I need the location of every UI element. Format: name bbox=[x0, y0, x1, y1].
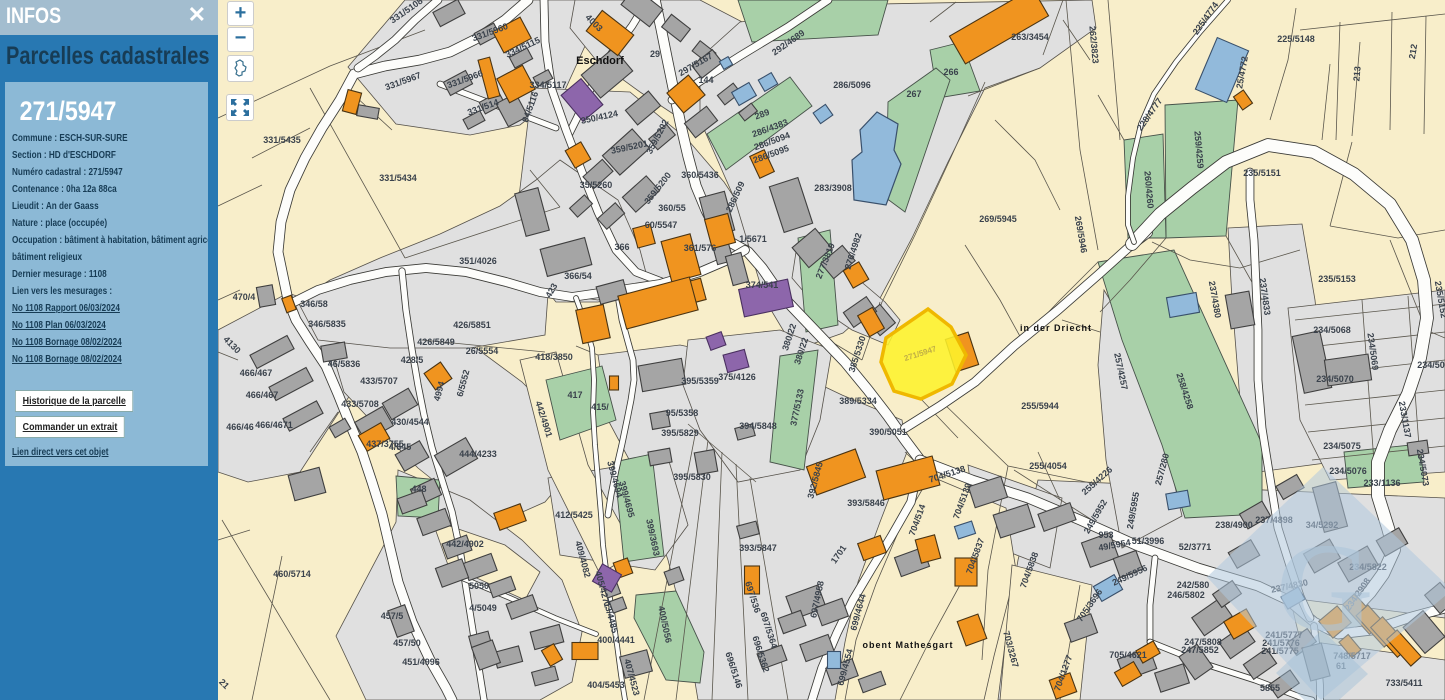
svg-text:366/54: 366/54 bbox=[564, 271, 592, 281]
svg-text:233/1136: 233/1136 bbox=[1363, 478, 1400, 488]
svg-text:255/4054: 255/4054 bbox=[1029, 461, 1067, 471]
svg-text:390/5051: 390/5051 bbox=[869, 427, 907, 437]
svg-text:26/5554: 26/5554 bbox=[466, 346, 499, 356]
svg-text:238/4900: 238/4900 bbox=[1215, 520, 1253, 530]
svg-text:360/5436: 360/5436 bbox=[681, 170, 719, 180]
svg-text:Eschdorf: Eschdorf bbox=[576, 55, 624, 67]
svg-text:255/5944: 255/5944 bbox=[1021, 401, 1059, 411]
svg-text:953: 953 bbox=[1098, 530, 1113, 540]
svg-text:234/5076: 234/5076 bbox=[1329, 466, 1367, 476]
svg-text:269/5945: 269/5945 bbox=[979, 214, 1017, 224]
svg-text:395/5359: 395/5359 bbox=[681, 376, 719, 386]
svg-text:374/541: 374/541 bbox=[746, 280, 779, 290]
svg-text:46/5836: 46/5836 bbox=[328, 359, 361, 369]
svg-text:4/645: 4/645 bbox=[389, 442, 412, 452]
svg-text:433/5707: 433/5707 bbox=[360, 376, 398, 386]
svg-text:351/4026: 351/4026 bbox=[459, 256, 497, 266]
svg-text:286/5096: 286/5096 bbox=[833, 80, 871, 90]
svg-text:375/4126: 375/4126 bbox=[718, 372, 756, 382]
svg-text:466/467: 466/467 bbox=[246, 390, 279, 400]
svg-text:283/3908: 283/3908 bbox=[814, 183, 852, 193]
svg-text:361/576: 361/576 bbox=[684, 243, 717, 253]
svg-text:360/55: 360/55 bbox=[658, 203, 686, 213]
svg-text:393/5847: 393/5847 bbox=[739, 543, 777, 553]
svg-text:60/5547: 60/5547 bbox=[645, 220, 678, 230]
svg-text:267: 267 bbox=[906, 89, 921, 99]
svg-text:389/5334: 389/5334 bbox=[839, 396, 877, 406]
svg-text:733/5411: 733/5411 bbox=[1385, 678, 1422, 688]
svg-text:235/5151: 235/5151 bbox=[1243, 168, 1281, 178]
svg-text:466/4671: 466/4671 bbox=[255, 420, 293, 430]
svg-text:395/5829: 395/5829 bbox=[661, 428, 699, 438]
svg-text:395/5830: 395/5830 bbox=[673, 472, 711, 482]
svg-text:460/5714: 460/5714 bbox=[273, 569, 311, 579]
svg-text:225/5148: 225/5148 bbox=[1277, 34, 1315, 44]
svg-text:obent Mathesgart: obent Mathesgart bbox=[862, 640, 953, 650]
svg-text:144: 144 bbox=[698, 75, 713, 85]
svg-text:263/3454: 263/3454 bbox=[1011, 32, 1049, 42]
svg-text:235/5153: 235/5153 bbox=[1318, 274, 1356, 284]
svg-text:366: 366 bbox=[614, 242, 629, 252]
svg-text:331/5435: 331/5435 bbox=[263, 135, 301, 145]
svg-text:234/5071: 234/5071 bbox=[1417, 360, 1445, 370]
svg-text:466/467: 466/467 bbox=[240, 368, 273, 378]
svg-text:705/4621: 705/4621 bbox=[1109, 650, 1147, 660]
svg-text:95/5358: 95/5358 bbox=[666, 408, 699, 418]
svg-text:451/4996: 451/4996 bbox=[402, 657, 440, 667]
svg-text:393/5846: 393/5846 bbox=[847, 498, 885, 508]
svg-text:234/5075: 234/5075 bbox=[1323, 441, 1361, 451]
svg-text:412/5425: 412/5425 bbox=[555, 510, 593, 520]
svg-text:426/5849: 426/5849 bbox=[417, 337, 455, 347]
svg-text:1/5671: 1/5671 bbox=[739, 234, 767, 244]
svg-text:4/5049: 4/5049 bbox=[469, 603, 497, 613]
svg-text:428/5: 428/5 bbox=[401, 355, 424, 365]
svg-text:29: 29 bbox=[650, 49, 660, 59]
svg-text:334/5117: 334/5117 bbox=[529, 80, 566, 90]
svg-text:346/5835: 346/5835 bbox=[308, 319, 346, 329]
svg-text:213: 213 bbox=[1351, 66, 1362, 82]
svg-text:5855: 5855 bbox=[1260, 683, 1280, 693]
svg-text:52/3771: 52/3771 bbox=[1179, 542, 1212, 552]
svg-text:266: 266 bbox=[943, 67, 958, 77]
svg-text:246/5802: 246/5802 bbox=[1167, 590, 1205, 600]
svg-text:234/5068: 234/5068 bbox=[1313, 325, 1351, 335]
svg-text:400/4441: 400/4441 bbox=[597, 635, 635, 645]
svg-text:426/5851: 426/5851 bbox=[453, 320, 491, 330]
svg-text:51/3996: 51/3996 bbox=[1132, 536, 1165, 546]
svg-text:415/: 415/ bbox=[591, 402, 609, 412]
svg-text:466/46: 466/46 bbox=[226, 422, 254, 432]
svg-text:5050: 5050 bbox=[469, 581, 489, 591]
svg-text:35/5260: 35/5260 bbox=[580, 180, 613, 190]
svg-text:442/4902: 442/4902 bbox=[446, 539, 484, 549]
svg-text:346/58: 346/58 bbox=[300, 299, 328, 309]
svg-text:448: 448 bbox=[411, 484, 426, 494]
svg-text:430/4544: 430/4544 bbox=[391, 417, 429, 427]
svg-text:418/3850: 418/3850 bbox=[535, 352, 573, 362]
svg-text:417: 417 bbox=[567, 390, 582, 400]
svg-text:394/5848: 394/5848 bbox=[739, 421, 777, 431]
svg-text:in der Driecht: in der Driecht bbox=[1020, 323, 1092, 333]
svg-text:247/5852: 247/5852 bbox=[1181, 645, 1219, 655]
svg-text:444/4233: 444/4233 bbox=[459, 449, 497, 459]
svg-text:470/4: 470/4 bbox=[233, 292, 256, 302]
svg-text:242/580: 242/580 bbox=[1177, 580, 1210, 590]
svg-text:457/5: 457/5 bbox=[381, 611, 404, 621]
svg-text:457/50: 457/50 bbox=[393, 638, 421, 648]
svg-text:433/5708: 433/5708 bbox=[341, 399, 379, 409]
svg-text:234/5070: 234/5070 bbox=[1316, 374, 1354, 384]
svg-text:404/5453: 404/5453 bbox=[587, 680, 625, 690]
svg-text:331/5434: 331/5434 bbox=[379, 173, 417, 183]
